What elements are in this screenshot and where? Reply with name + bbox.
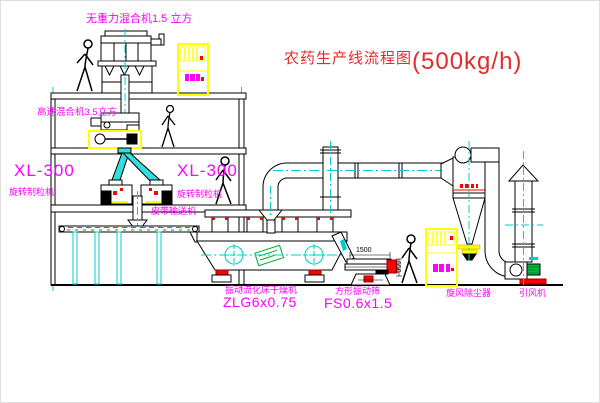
person-top-floor — [77, 40, 93, 91]
conveyor-leg — [73, 232, 77, 284]
dimension-550: 550 — [394, 261, 401, 273]
flow-diagram-canvas: 农药生产线流程图(500kg/h) 无重力混合机1.5 立方 高速混合机3.5立… — [0, 0, 600, 403]
label-sieve-model: FS0.6x1.5 — [324, 296, 392, 310]
label-belt-conveyor: 皮带输送机 — [151, 207, 196, 216]
fan-and-stack — [485, 151, 546, 285]
gravity-free-mixer — [98, 29, 164, 119]
elevator-motor-mark — [185, 74, 189, 81]
label-granulator-left-model: XL-300 — [14, 162, 75, 179]
dimension-1500: 1500 — [356, 247, 372, 254]
conveyor-leg — [95, 232, 99, 284]
down-pipe — [485, 162, 511, 277]
label-gravity-mixer: 无重力混合机1.5 立方 — [86, 14, 192, 25]
high-speed-mixer — [89, 113, 141, 148]
person-second-floor — [162, 106, 175, 148]
bucket-elevator-2 — [426, 229, 457, 286]
conveyor-leg — [117, 232, 121, 284]
label-granulator-mid-name: 旋转制粒机 — [177, 190, 222, 199]
floor-slab-1 — [51, 93, 246, 99]
title-capacity: (500kg/h) — [412, 48, 522, 75]
bucket-elevator-1 — [178, 44, 208, 95]
label-granulator-mid-model: XL-300 — [177, 162, 238, 179]
label-cyclone: 旋风除尘器 — [446, 289, 491, 298]
label-fan: 引风机 — [519, 289, 546, 298]
title-text: 农药生产线流程图 — [284, 50, 412, 67]
diagram-title: 农药生产线流程图(500kg/h) — [284, 47, 522, 76]
square-vibrating-sieve — [332, 232, 402, 285]
label-high-speed-mixer: 高速混合机3.5立方 — [37, 108, 117, 118]
elevator-motor-mark — [433, 264, 438, 272]
floor-slab-2 — [51, 148, 246, 154]
label-dryer-model: ZLG6x0.75 — [223, 295, 297, 309]
belt-conveyor — [59, 226, 207, 284]
label-granulator-left-name: 旋转制粒机 — [9, 188, 54, 197]
cyclone-inlet-reducer — [441, 158, 453, 186]
sieve-deck — [347, 259, 391, 264]
conveyor-leg — [157, 232, 161, 284]
person-ground — [402, 235, 417, 283]
